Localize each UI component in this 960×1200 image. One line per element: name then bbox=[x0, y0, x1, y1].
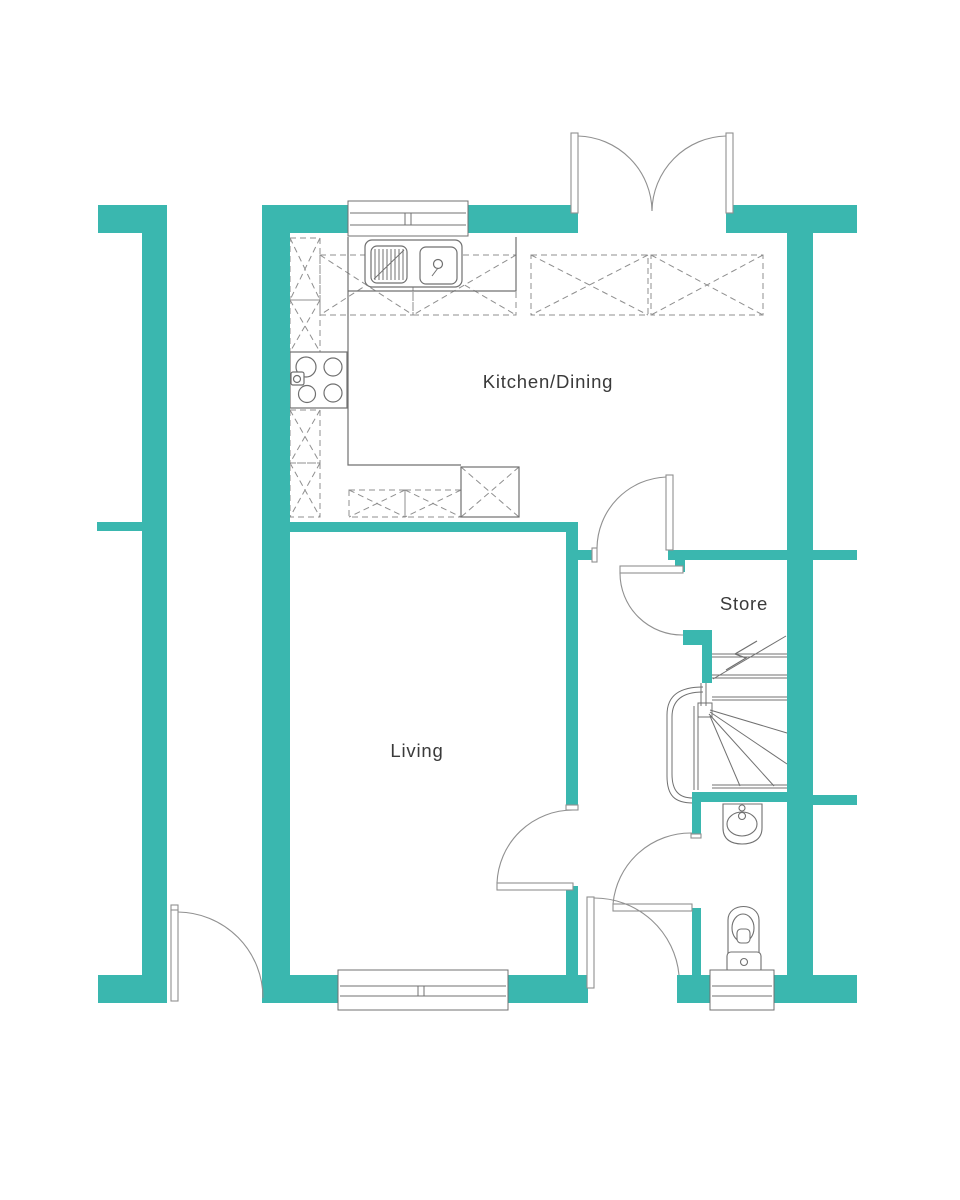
wall-store-divider-stub bbox=[578, 550, 593, 560]
hob-icon bbox=[290, 352, 347, 408]
store-door-icon bbox=[592, 548, 683, 635]
kitchen-sink-icon bbox=[365, 240, 462, 287]
wall-store-l-stub-v bbox=[702, 645, 712, 683]
kitchen-window-icon bbox=[348, 201, 468, 236]
wall-bottom-d bbox=[772, 975, 813, 1003]
room-label-store: Store bbox=[720, 593, 768, 614]
wall-wc-left-upper bbox=[692, 802, 701, 835]
doors bbox=[171, 475, 701, 1001]
wall-store-l-stub-h bbox=[683, 630, 712, 645]
wall-kitchen-living-divider bbox=[290, 522, 566, 532]
wall-unit-left bbox=[262, 205, 290, 1003]
wall-hall-partition-lower bbox=[566, 886, 578, 978]
wall-right-tick-1 bbox=[813, 550, 857, 560]
wall-bottom-right-foot bbox=[813, 975, 857, 1003]
wall-store-divider bbox=[668, 550, 787, 560]
wc-door-icon bbox=[613, 833, 701, 911]
wall-top-c bbox=[726, 205, 857, 233]
living-window-icon bbox=[338, 970, 508, 1010]
wall-right-tick-2 bbox=[813, 795, 857, 805]
side-passage-door-icon bbox=[171, 905, 263, 1001]
floor-plan-canvas: Kitchen/Dining Store Living bbox=[0, 0, 960, 1200]
wall-hall-partition-upper bbox=[566, 522, 578, 810]
wc-toilet-icon bbox=[727, 907, 761, 974]
kitchen-door-icon bbox=[597, 475, 673, 550]
room-label-kitchen-dining: Kitchen/Dining bbox=[483, 371, 614, 392]
wc-window-icon bbox=[710, 970, 774, 1010]
wc-basin-icon bbox=[723, 804, 762, 844]
wall-left-tick bbox=[97, 522, 142, 531]
living-door-icon bbox=[497, 805, 578, 890]
floor-plan-page: Kitchen/Dining Store Living bbox=[0, 0, 960, 1200]
wall-wc-left-lower bbox=[692, 908, 701, 975]
wall-stairs-wc-divider bbox=[692, 792, 813, 802]
wall-right bbox=[787, 233, 813, 1003]
room-label-living: Living bbox=[390, 740, 443, 761]
wall-top-a bbox=[262, 205, 350, 233]
french-doors-icon bbox=[571, 133, 733, 213]
wall-bottom-left-foot bbox=[98, 975, 167, 1003]
wall-left-boundary bbox=[142, 205, 167, 1003]
wall-bottom-b bbox=[508, 975, 588, 1003]
wall-bottom-a bbox=[262, 975, 338, 1003]
wall-top-b bbox=[468, 205, 578, 233]
